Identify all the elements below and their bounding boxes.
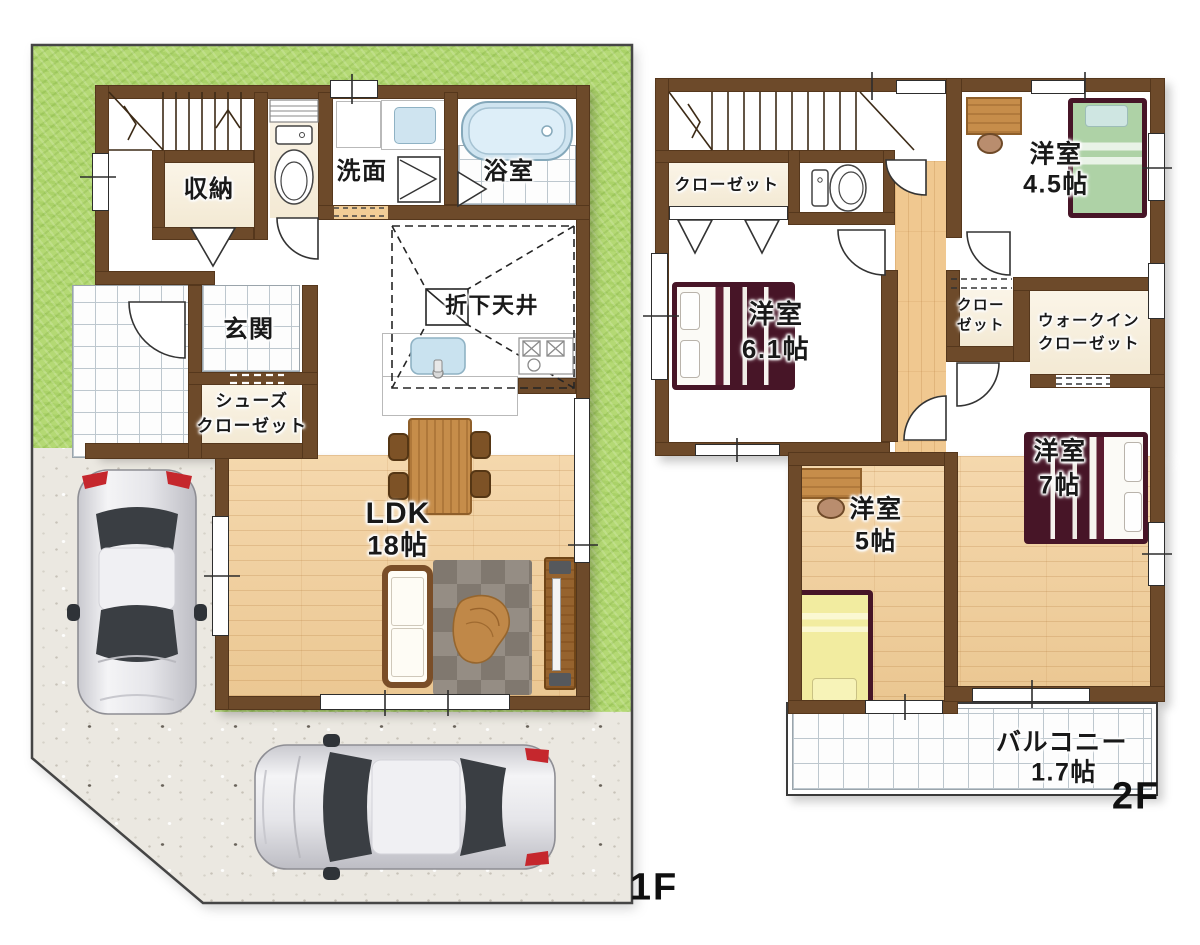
room-label-ldk: LDK <box>366 499 431 529</box>
room-label-shoe-closet-1: シューズ <box>215 393 288 410</box>
window <box>1031 80 1085 94</box>
f1-wall-shoe-closet-top <box>188 372 318 385</box>
dining-chair <box>470 431 491 459</box>
window <box>1148 522 1165 586</box>
bed-pillow <box>680 292 700 330</box>
f2-wic-floor <box>1030 291 1150 374</box>
f2-hall-floor <box>895 161 946 453</box>
room-label-bathroom: 浴室 <box>484 160 535 184</box>
sofa-cushion <box>391 628 424 677</box>
bed-pillow <box>1085 105 1128 127</box>
room-label-bedroom61-size: 6.1帖 <box>742 336 810 362</box>
room-label-bedroom45-size: 4.5帖 <box>1023 173 1089 198</box>
bed-pillow <box>680 340 700 378</box>
f2-wall-stairs-bottom <box>655 150 895 163</box>
tv-screen <box>552 578 561 671</box>
floor-plan-canvas: 収納 洗面 浴室 玄関 シューズ クローゼット 折下天井 LDK 18帖 1F … <box>0 0 1200 945</box>
dining-chair <box>388 433 409 461</box>
floor-label-2f: 2F <box>1112 776 1160 819</box>
room-label-balcony-size: 1.7帖 <box>1031 761 1097 786</box>
f2-wall-wic-top <box>1013 277 1165 291</box>
vanity-sink <box>394 107 436 144</box>
window <box>651 253 668 380</box>
window <box>574 398 590 563</box>
room-label-washroom: 洗面 <box>337 160 388 184</box>
sofa-cushion <box>391 577 424 626</box>
f1-toilet-floor <box>270 105 318 218</box>
room-label-balcony: バルコニー <box>996 731 1128 756</box>
room-label-shoe-closet-2: クローゼット <box>197 418 308 435</box>
f2-wall-5-top <box>788 452 958 466</box>
window <box>92 153 109 211</box>
f2-wall-5-7-divider <box>944 452 958 700</box>
bed-pillow <box>1124 442 1142 482</box>
f2-wall-5-left <box>788 452 802 714</box>
f2-wall-wic-bottom <box>1030 374 1165 388</box>
living-rug <box>433 560 532 695</box>
f1-wall-washroom-bath <box>444 92 458 205</box>
window <box>1148 263 1165 319</box>
stool-bedroom5 <box>817 497 845 519</box>
washing-machine <box>336 101 381 148</box>
room-label-closet-center-2: ゼット <box>957 319 1005 334</box>
f2-wall-toilet-bottom <box>788 212 895 225</box>
room-label-ldk-size: 18帖 <box>367 533 429 560</box>
f1-wall-storage-top <box>152 150 254 163</box>
dining-chair <box>470 470 491 498</box>
dining-chair <box>388 472 409 500</box>
window <box>695 444 780 456</box>
room-label-lowered-ceiling: 折下天井 <box>445 295 539 317</box>
window-sliding-door <box>320 694 510 710</box>
f1-wall-toilet-washroom <box>318 92 333 218</box>
room-label-bedroom7: 洋室 <box>1033 440 1086 465</box>
f2-wall-stairs-45 <box>946 78 962 238</box>
room-label-wic-2: クローゼット <box>1038 336 1140 352</box>
kitchen-island <box>382 376 518 416</box>
f1-porch-tile <box>72 285 202 458</box>
f2-wall-61-hall <box>881 270 898 442</box>
room-label-closet-west: クローゼット <box>674 178 779 194</box>
desk-bedroom45 <box>966 97 1022 135</box>
window <box>1148 133 1165 201</box>
room-label-closet-center-1: クロー <box>957 299 1005 314</box>
window <box>212 516 229 636</box>
room-label-bedroom61: 洋室 <box>748 301 803 327</box>
floor-label-1f: 1F <box>630 867 678 910</box>
room-label-storage: 収納 <box>184 178 235 202</box>
bed-pillow <box>812 678 857 702</box>
desk-bedroom5 <box>800 468 862 499</box>
closet-hanger-bar <box>669 206 788 220</box>
window <box>896 80 946 94</box>
tv-speaker <box>549 673 571 686</box>
room-label-wic-1: ウォークイン <box>1038 313 1140 329</box>
tv-speaker <box>549 561 571 574</box>
room-label-entrance: 玄関 <box>224 318 275 342</box>
window-balcony-door <box>972 688 1090 702</box>
room-label-bedroom7-size: 7帖 <box>1039 474 1081 499</box>
window-balcony-door <box>865 700 943 714</box>
kitchen-counter <box>382 333 576 378</box>
room-label-bedroom5: 洋室 <box>849 498 902 523</box>
f1-wall-washblock-bottom <box>318 205 590 220</box>
f1-wall-storage-bottom <box>152 227 254 240</box>
f1-wall-stairs-toilet <box>254 92 268 240</box>
window <box>330 80 378 98</box>
f1-wall-kitchen-stub <box>518 378 576 394</box>
room-label-bedroom5-size: 5帖 <box>855 530 897 555</box>
bed-pillow <box>1124 492 1142 532</box>
f1-wall-porch-top <box>95 271 215 285</box>
room-label-bedroom45: 洋室 <box>1029 143 1082 168</box>
stool-bedroom45 <box>977 133 1003 154</box>
